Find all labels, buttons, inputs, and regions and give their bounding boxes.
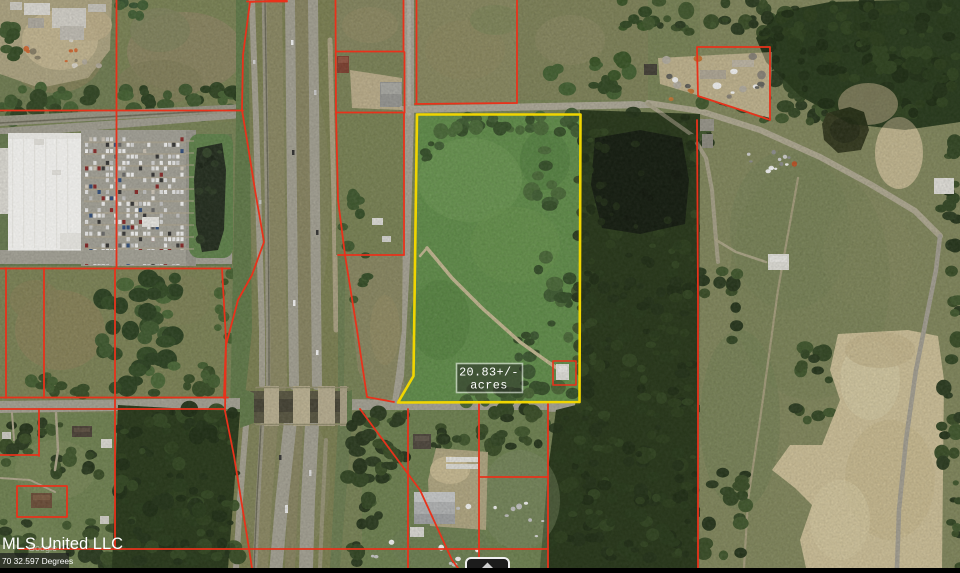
svg-text:acres: acres [470,379,507,393]
svg-text:MLS United LLC: MLS United LLC [2,535,123,553]
svg-text:20.83+/-: 20.83+/- [459,366,519,380]
svg-text:70 32.597 Degrees: 70 32.597 Degrees [2,556,73,566]
